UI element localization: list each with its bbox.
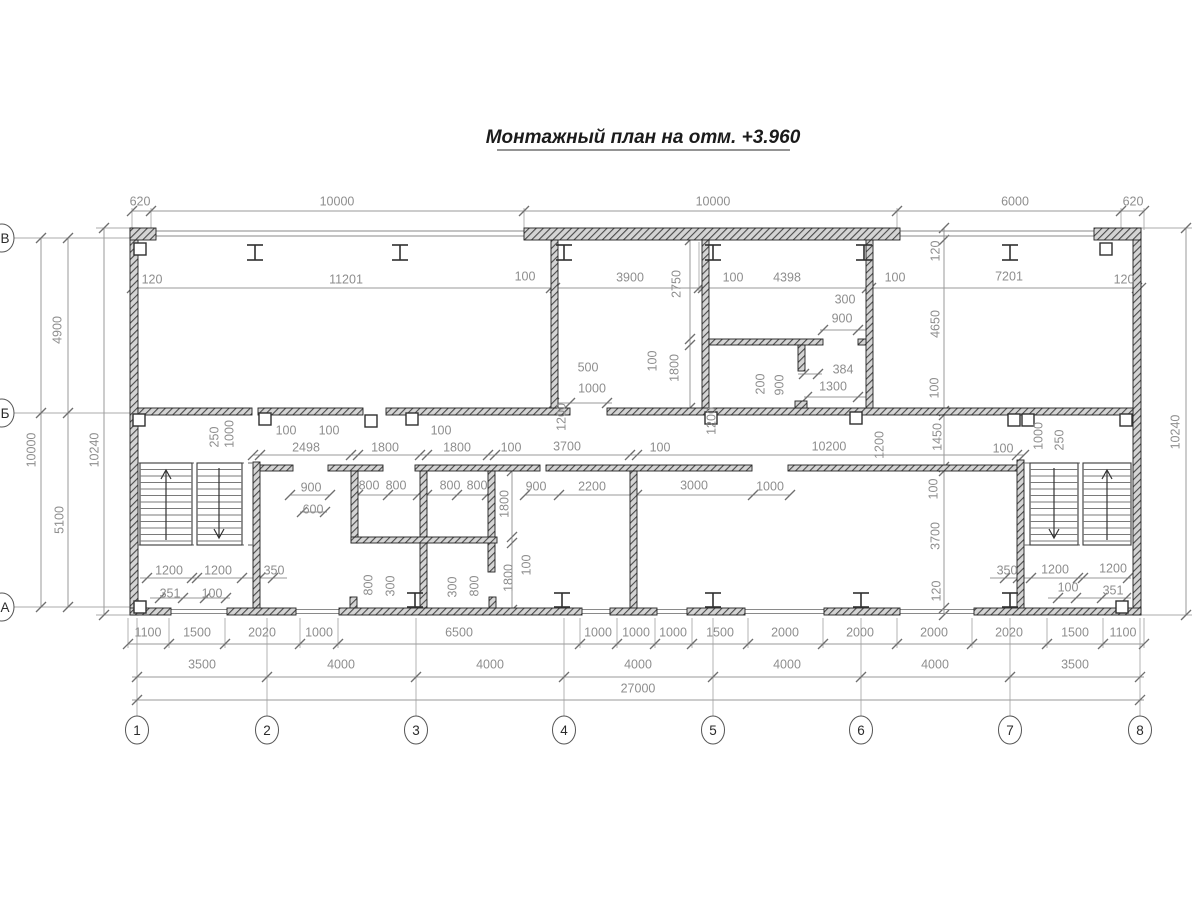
dimension-label: 351: [1103, 583, 1124, 597]
dimension-label: 1200: [704, 407, 718, 435]
steel-column-icon: [1002, 245, 1018, 260]
dimension-label: 900: [772, 375, 786, 396]
dimension-label: 1800: [371, 440, 399, 454]
dimension-label: 300: [383, 576, 397, 597]
dimension-label: 2498: [292, 440, 320, 454]
dimension-label: 2020: [995, 625, 1023, 639]
dimension-label: 100: [519, 555, 533, 576]
dimension-label: 10000: [320, 194, 355, 208]
axis-label: В: [0, 231, 9, 246]
dimension-label: 1450: [930, 423, 944, 451]
dimension-label: 1200: [872, 431, 886, 459]
dimension-label: 6500: [445, 625, 473, 639]
dimension-label: 384: [833, 362, 854, 376]
axis-label: 2: [263, 723, 271, 738]
dimension-label: 1500: [706, 625, 734, 639]
panel-joint-icon: [1120, 414, 1132, 426]
dimension-label: 100: [202, 586, 223, 600]
dimension-label: 1100: [1110, 625, 1137, 639]
dimension-label: 120: [929, 581, 943, 602]
dimension-label: 300: [835, 292, 856, 306]
dimension-label: 1500: [1061, 625, 1089, 639]
axis-label: 5: [709, 723, 717, 738]
steel-column-icon: [853, 593, 869, 607]
dimension-label: 2200: [578, 479, 606, 493]
panel-joint-icon: [259, 413, 271, 425]
panel-joint-icon: [134, 243, 146, 255]
dimension-label: 100: [431, 423, 452, 437]
dimension-label: 4398: [773, 270, 801, 284]
dimension-label: 2750: [669, 270, 683, 298]
axis-label: Б: [1, 406, 10, 421]
dimension-label: 1300: [819, 379, 847, 393]
dimension-label: 2000: [920, 625, 948, 639]
dimension-label: 100: [723, 270, 744, 284]
steel-column-icon: [554, 593, 570, 607]
panel-joint-icon: [365, 415, 377, 427]
dimension-label: 3900: [616, 270, 644, 284]
dimension-label: 100: [276, 423, 297, 437]
dimension-label: 800: [386, 478, 407, 492]
dimension-label: 350: [264, 563, 285, 577]
panel-joint-icon: [133, 414, 145, 426]
dimension-label: 900: [301, 480, 322, 494]
dimension-label: 3700: [553, 439, 581, 453]
dimension-label: 620: [130, 194, 151, 208]
dimension-label: 1500: [183, 625, 211, 639]
dimension-label: 100: [515, 269, 536, 283]
dimension-label: 100: [927, 378, 941, 399]
axis-label: 8: [1136, 723, 1144, 738]
dimension-label: 1100: [135, 625, 162, 639]
dimension-label: 3000: [680, 478, 708, 492]
dimension-label: 800: [361, 575, 375, 596]
dimension-label: 120: [142, 272, 163, 286]
dimension-label: 100: [993, 441, 1014, 455]
dimension-label: 10240: [1168, 415, 1182, 450]
dimension-label: 1200: [554, 403, 568, 431]
panel-joint-icon: [1116, 601, 1128, 613]
page-title: Монтажный план на отм. +3.960: [486, 127, 801, 148]
dimension-label: 800: [440, 478, 461, 492]
dimension-label: 6000: [1001, 194, 1029, 208]
dimension-label: 1000: [756, 479, 784, 493]
dimension-label: 7201: [995, 269, 1023, 283]
dimension-label: 900: [832, 311, 853, 325]
dimension-label: 4900: [50, 316, 64, 344]
dimension-label: 1000: [622, 625, 650, 639]
dimension-label: 3500: [1061, 657, 1089, 671]
dimension-label: 100: [319, 423, 340, 437]
steel-column-icon: [392, 245, 408, 260]
dimension-label: 10000: [24, 433, 38, 468]
dimension-label: 4000: [921, 657, 949, 671]
panel-joint-icon: [1008, 414, 1020, 426]
dimension-label: 27000: [621, 681, 656, 695]
dimension-label: 1200: [1099, 561, 1127, 575]
dimension-label: 4000: [773, 657, 801, 671]
dimension-label: 10200: [812, 439, 847, 453]
dimension-label: 900: [526, 479, 547, 493]
panel-joint-icon: [406, 413, 418, 425]
stair-right: [1024, 463, 1133, 545]
dimension-label: 100: [926, 479, 940, 500]
drawing-title: Монтажный план на отм. +3.960: [486, 127, 801, 150]
dimension-label: 3500: [188, 657, 216, 671]
dimension-label: 800: [467, 478, 488, 492]
steel-column-icon: [705, 593, 721, 607]
dimension-label: 250: [1052, 430, 1066, 451]
dimension-label: 2000: [771, 625, 799, 639]
dimension-label: 1800: [443, 440, 471, 454]
steel-column-icon: [247, 245, 263, 260]
walls-layer: [130, 228, 1141, 615]
dimension-label: 351: [160, 586, 181, 600]
dimension-label: 4000: [476, 657, 504, 671]
dimension-label: 100: [501, 440, 522, 454]
axis-label: 1: [133, 723, 141, 738]
dimension-label: 200: [753, 374, 767, 395]
drawing-sheet: Монтажный план на отм. +3.960: [0, 0, 1200, 900]
axis-label: А: [0, 600, 9, 615]
dimension-label: 100: [1058, 580, 1079, 594]
dimension-label: 100: [645, 351, 659, 372]
dimension-label: 1800: [501, 564, 515, 592]
dimension-label: 120: [1114, 272, 1135, 286]
dimension-label: 300: [445, 577, 459, 598]
dimension-label: 4000: [327, 657, 355, 671]
stair-left: [138, 463, 253, 545]
dimension-label: 10240: [87, 433, 101, 468]
dimension-label: 800: [467, 576, 481, 597]
dimension-label: 250: [207, 427, 221, 448]
dimension-label: 4000: [624, 657, 652, 671]
dimension-label: 1200: [204, 563, 232, 577]
dimension-label: 350: [997, 563, 1018, 577]
dimension-label: 600: [303, 502, 324, 516]
panel-joint-icon: [850, 412, 862, 424]
axis-label: 6: [857, 723, 865, 738]
dimension-label: 100: [650, 440, 671, 454]
dimension-label: 5100: [52, 506, 66, 534]
dimension-label: 2000: [846, 625, 874, 639]
dimension-label: 120: [928, 241, 942, 262]
dimension-label: 11201: [329, 272, 363, 286]
axis-label: 7: [1006, 723, 1014, 738]
dimension-label: 1800: [497, 490, 511, 518]
dimension-label: 620: [1123, 194, 1144, 208]
steel-column-icon: [1002, 593, 1018, 607]
dimension-label: 4650: [928, 310, 942, 338]
dimension-label: 800: [359, 478, 380, 492]
panel-joint-icon: [134, 601, 146, 613]
dimension-label: 1200: [1041, 562, 1069, 576]
dimension-label: 500: [578, 360, 599, 374]
dimension-label: 1000: [222, 420, 236, 448]
dimension-label: 1000: [578, 381, 606, 395]
dimension-label: 1000: [584, 625, 612, 639]
dimension-label: 1200: [155, 563, 183, 577]
panel-joint-icon: [1100, 243, 1112, 255]
dimension-label: 1000: [305, 625, 333, 639]
dimension-label: 1000: [1031, 422, 1045, 450]
dimension-label: 3700: [928, 522, 942, 550]
dimension-label: 1000: [659, 625, 687, 639]
dimension-label: 1800: [667, 354, 681, 382]
dimension-label: 2020: [248, 625, 276, 639]
dimension-label: 100: [885, 270, 906, 284]
extension-lines: [14, 208, 1192, 716]
dimension-label: 10000: [696, 194, 731, 208]
axis-label: 3: [412, 723, 420, 738]
dimension-labels: 6201000010000600062012011201100390010043…: [24, 194, 1182, 695]
axis-label: 4: [560, 723, 568, 738]
floor-plan: Монтажный план на отм. +3.960: [0, 0, 1200, 900]
